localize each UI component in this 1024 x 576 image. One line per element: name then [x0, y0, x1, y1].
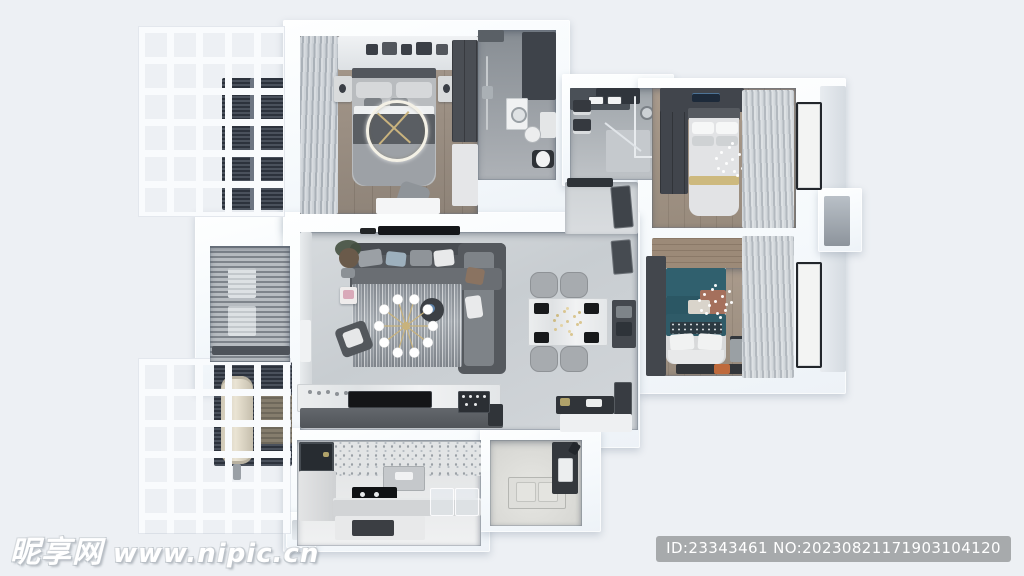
dining-chair — [530, 346, 558, 372]
louver-sill — [212, 346, 290, 355]
master-bedroom-curtain — [300, 36, 338, 214]
sink-fittings-icon — [308, 390, 312, 394]
placemat — [534, 332, 549, 343]
floorplan-3d-render — [0, 0, 1024, 576]
door-panel — [611, 239, 634, 275]
bath-cabinet — [573, 100, 591, 115]
door-panel — [610, 185, 634, 229]
bedroom2-curtain — [742, 90, 794, 228]
bed2-pillow — [716, 122, 738, 134]
balcony-lattice-top-left — [138, 26, 285, 217]
placemat — [534, 303, 549, 314]
shower-tray — [606, 130, 650, 172]
watermark-site-url: www.nipic.cn — [113, 539, 319, 569]
louver-window — [228, 268, 256, 298]
side-table-top — [343, 290, 354, 299]
louver-room — [210, 246, 290, 362]
dining-chair — [530, 272, 558, 298]
window-handle-icon — [323, 452, 329, 457]
ac-unit — [824, 196, 850, 246]
table-lamp-icon — [339, 84, 346, 93]
radiator — [300, 320, 311, 362]
bed3-pillow — [697, 333, 722, 351]
ring-light-icon — [366, 100, 428, 162]
sofa-pillow — [433, 249, 455, 267]
washer-door-icon — [511, 107, 527, 123]
wash-basin — [524, 126, 541, 143]
bed3-pillow — [669, 333, 694, 351]
sofa-pillow — [357, 248, 383, 267]
bed-pillow — [356, 82, 392, 98]
dining-chair — [560, 272, 588, 298]
plant-pot — [339, 248, 359, 268]
wall-frame-icon — [401, 44, 412, 55]
bedroom-desk — [452, 144, 478, 206]
cabinet-frame — [616, 306, 632, 318]
drain-cover — [516, 482, 536, 502]
entry-floor — [560, 414, 632, 432]
bed3-base — [668, 350, 724, 364]
bed2-pillow — [716, 136, 738, 146]
window — [796, 262, 822, 368]
bedroom3-curtain — [742, 236, 794, 378]
toilet — [536, 151, 550, 167]
vanity-counter — [540, 112, 556, 138]
hallway-ceiling-edge — [567, 178, 613, 187]
master-wardrobe — [452, 40, 478, 142]
sofa-pillow — [385, 251, 406, 267]
wall-frame-icon — [436, 44, 448, 55]
sparkler-chandelier-icon — [731, 158, 734, 161]
image-id-badge: ID:23343461 NO:20230821171903104120 — [656, 536, 1011, 562]
wall-frame-icon — [416, 42, 432, 55]
glass-panel — [430, 488, 454, 516]
control-buttons-icon — [462, 395, 465, 398]
table-lamp-icon — [443, 84, 450, 93]
cabinet-inset — [352, 520, 394, 536]
glass-panel — [455, 488, 479, 516]
media-device — [360, 228, 376, 234]
footstool — [341, 268, 355, 278]
sofa-pillow — [410, 250, 432, 266]
window — [796, 102, 822, 190]
cooktop — [348, 391, 432, 408]
cabinet-frame — [616, 322, 632, 336]
bedroom-doorway — [376, 198, 440, 214]
oven-dials-icon — [360, 492, 365, 497]
sofa-pillow — [465, 267, 486, 286]
runner-rug-orange — [714, 364, 730, 374]
bed2-runner-stripe — [689, 176, 739, 185]
console-label — [586, 399, 602, 407]
bedroom3-wardrobe — [646, 256, 666, 376]
bathroom-shelf — [478, 30, 504, 42]
bath-cabinet — [573, 119, 591, 134]
watermark-site-name: 昵享网 — [10, 527, 103, 571]
globe-chandelier-icon — [372, 292, 440, 360]
sofa-pillow — [465, 295, 484, 319]
hood-label — [395, 472, 413, 480]
bed-pillow — [396, 82, 432, 98]
island-side-panel — [488, 404, 503, 426]
bed2-pillow — [692, 122, 714, 134]
sparkler-chandelier-icon — [714, 300, 717, 303]
balcony-lattice-bottom-left — [138, 358, 291, 534]
living-left-wall-face — [300, 232, 312, 390]
switch-panel — [558, 458, 573, 482]
tv-icon — [692, 93, 720, 102]
placemat — [584, 303, 599, 314]
wall-frame-icon — [382, 42, 397, 55]
bathroom-shower-screen — [522, 32, 556, 100]
wall-frame-icon — [366, 44, 378, 55]
placemat — [584, 332, 599, 343]
gold-chandelier-icon — [566, 320, 569, 323]
watermark: 昵享网 www.nipic.cn — [10, 527, 319, 571]
louver-window — [228, 306, 256, 336]
kitchen-bench — [299, 471, 336, 521]
ceiling-light-icon — [607, 96, 622, 105]
kitchen-window — [299, 442, 334, 472]
console-plant-icon — [560, 398, 570, 406]
bed2-pillow — [692, 136, 714, 146]
bed3-knit-patch — [688, 300, 710, 314]
wall-boiler — [482, 86, 493, 99]
dining-chair — [560, 346, 588, 372]
bed3-pattern-pillow — [670, 322, 722, 334]
tv-panel — [378, 226, 460, 235]
